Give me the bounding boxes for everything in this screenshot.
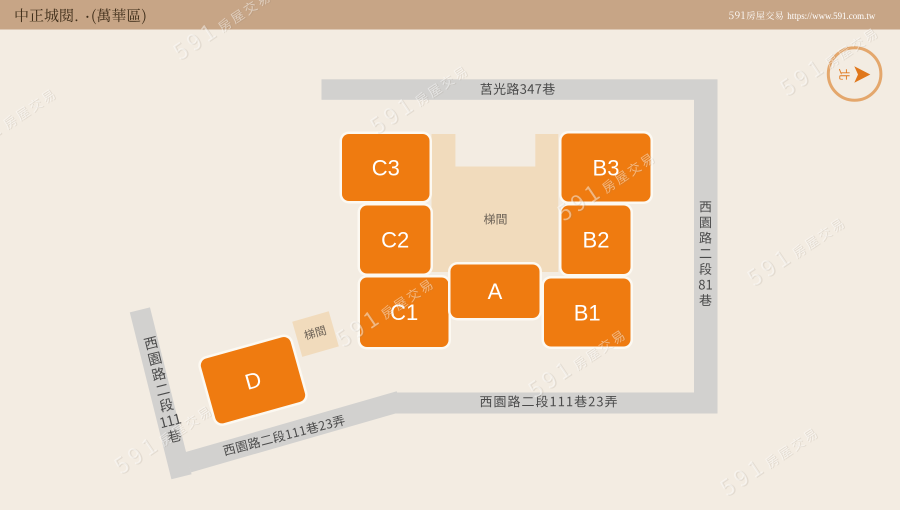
svg-text:B1: B1 — [574, 300, 601, 325]
svg-text:A: A — [488, 279, 503, 304]
svg-text:C3: C3 — [372, 155, 400, 180]
svg-text:C2: C2 — [381, 227, 409, 252]
svg-text:B2: B2 — [583, 228, 610, 253]
svg-text:https://www.591.com.tw: https://www.591.com.tw — [787, 11, 876, 22]
